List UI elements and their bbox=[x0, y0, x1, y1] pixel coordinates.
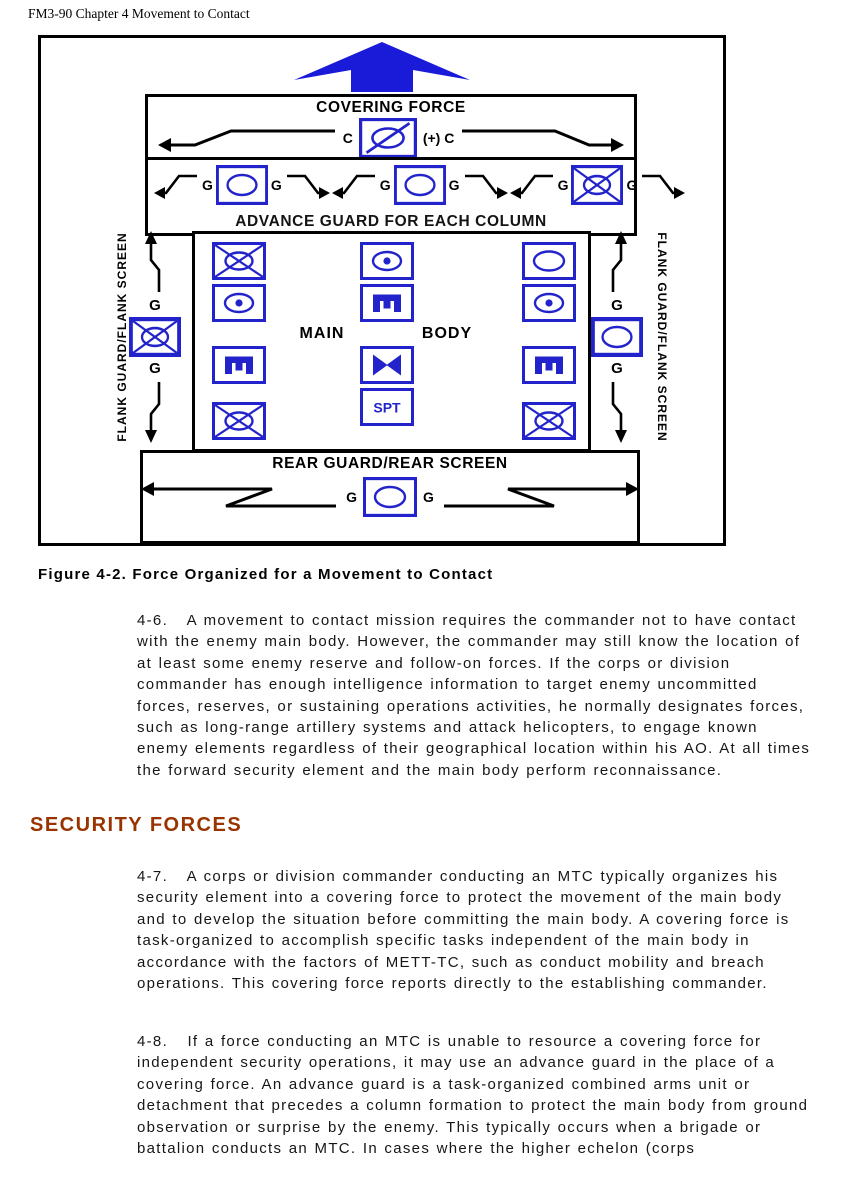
cavalry-unit-symbol-icon bbox=[359, 118, 417, 158]
covering-force-c-right-label: (+) C bbox=[423, 130, 455, 146]
sp-artillery-unit-symbol-icon bbox=[522, 284, 576, 322]
screen-line-right-icon bbox=[460, 124, 625, 152]
guard-g-label: G bbox=[449, 177, 460, 193]
figure-4-2-diagram: COVERING FORCE C (+) C bbox=[38, 35, 726, 546]
paragraph-4-7: 4-7. A corps or division commander condu… bbox=[137, 866, 815, 994]
document-page: FM3-90 Chapter 4 Movement to Contact COV… bbox=[0, 0, 846, 1197]
mech-infantry-unit-symbol-icon bbox=[212, 242, 266, 280]
advance-guard-box: G G bbox=[145, 157, 637, 236]
advance-guard-group-1: G G bbox=[153, 165, 331, 205]
guard-zigzag-right-icon bbox=[640, 168, 686, 202]
flank-screen-up-arrow-icon bbox=[605, 230, 629, 294]
rear-guard-g-left-label: G bbox=[346, 489, 357, 505]
flank-guard-left-label: FLANK GUARD/FLANK SCREEN bbox=[115, 232, 129, 441]
paragraph-4-6: 4-6. A movement to contact mission requi… bbox=[137, 610, 815, 781]
support-unit-symbol-icon: SPT bbox=[360, 388, 414, 426]
armor-unit-symbol-icon bbox=[363, 477, 417, 517]
guard-zigzag-right-icon bbox=[285, 168, 331, 202]
engineer-unit-symbol-icon bbox=[522, 346, 576, 384]
figure-caption: Figure 4-2. Force Organized for a Moveme… bbox=[38, 566, 493, 583]
paragraph-4-8: 4-8. If a force conducting an MTC is una… bbox=[137, 1031, 815, 1159]
svg-text:SPT: SPT bbox=[373, 400, 401, 416]
screen-line-left-icon bbox=[140, 482, 340, 512]
rear-guard-g-right-label: G bbox=[423, 489, 434, 505]
flank-screen-down-arrow-icon bbox=[143, 380, 167, 444]
flank-g-label: G bbox=[149, 360, 161, 377]
flank-screen-up-arrow-icon bbox=[143, 230, 167, 294]
flank-guard-right-stack: G G bbox=[591, 230, 643, 444]
engineer-unit-symbol-icon bbox=[212, 346, 266, 384]
guard-g-label: G bbox=[271, 177, 282, 193]
armor-unit-symbol-icon bbox=[522, 242, 576, 280]
flank-g-label: G bbox=[149, 297, 161, 314]
rear-guard-row: G G bbox=[143, 477, 637, 517]
mech-infantry-unit-symbol-icon bbox=[571, 165, 623, 205]
mech-infantry-unit-symbol-icon bbox=[212, 402, 266, 440]
covering-force-c-left-label: C bbox=[343, 130, 353, 146]
guard-g-label: G bbox=[626, 177, 637, 193]
main-body-box: SPT bbox=[192, 231, 591, 452]
flank-g-label: G bbox=[611, 360, 623, 377]
mech-infantry-unit-symbol-icon bbox=[129, 317, 181, 357]
aviation-unit-symbol-icon bbox=[360, 346, 414, 384]
covering-force-row: C (+) C bbox=[148, 118, 634, 158]
screen-line-right-icon bbox=[440, 482, 640, 512]
mech-infantry-unit-symbol-icon bbox=[522, 402, 576, 440]
engineer-unit-symbol-icon bbox=[360, 284, 414, 322]
covering-force-box: COVERING FORCE C (+) C bbox=[145, 94, 637, 160]
section-heading-security-forces: SECURITY FORCES bbox=[30, 814, 242, 837]
covering-force-label: COVERING FORCE bbox=[148, 97, 634, 117]
guard-g-label: G bbox=[380, 177, 391, 193]
flank-g-label: G bbox=[611, 297, 623, 314]
guard-zigzag-left-icon bbox=[153, 168, 199, 202]
advance-guard-label: ADVANCE GUARD FOR EACH COLUMN bbox=[148, 213, 634, 231]
armor-unit-symbol-icon bbox=[216, 165, 268, 205]
advance-guard-row: G G bbox=[148, 160, 634, 205]
armor-unit-symbol-icon bbox=[591, 317, 643, 357]
main-body-label-body: BODY bbox=[422, 325, 472, 343]
flank-guard-right-label: FLANK GUARD/FLANK SCREEN bbox=[655, 232, 669, 441]
guard-zigzag-left-icon bbox=[509, 168, 555, 202]
sp-artillery-unit-symbol-icon bbox=[360, 242, 414, 280]
flank-screen-down-arrow-icon bbox=[605, 380, 629, 444]
advance-guard-group-2: G G bbox=[331, 165, 509, 205]
rear-guard-label: REAR GUARD/REAR SCREEN bbox=[143, 453, 637, 473]
guard-g-label: G bbox=[202, 177, 213, 193]
advance-guard-group-3: G G bbox=[509, 165, 687, 205]
screen-line-left-icon bbox=[157, 124, 337, 152]
main-body-label-main: MAIN bbox=[300, 325, 345, 343]
flank-guard-left-stack: G G bbox=[129, 230, 181, 444]
armor-unit-symbol-icon bbox=[394, 165, 446, 205]
sp-artillery-unit-symbol-icon bbox=[212, 284, 266, 322]
rear-guard-box: REAR GUARD/REAR SCREEN G G bbox=[140, 450, 640, 544]
guard-g-label: G bbox=[558, 177, 569, 193]
guard-zigzag-right-icon bbox=[463, 168, 509, 202]
document-header: FM3-90 Chapter 4 Movement to Contact bbox=[28, 6, 250, 22]
guard-zigzag-left-icon bbox=[331, 168, 377, 202]
advance-direction-arrow-icon bbox=[292, 42, 472, 92]
